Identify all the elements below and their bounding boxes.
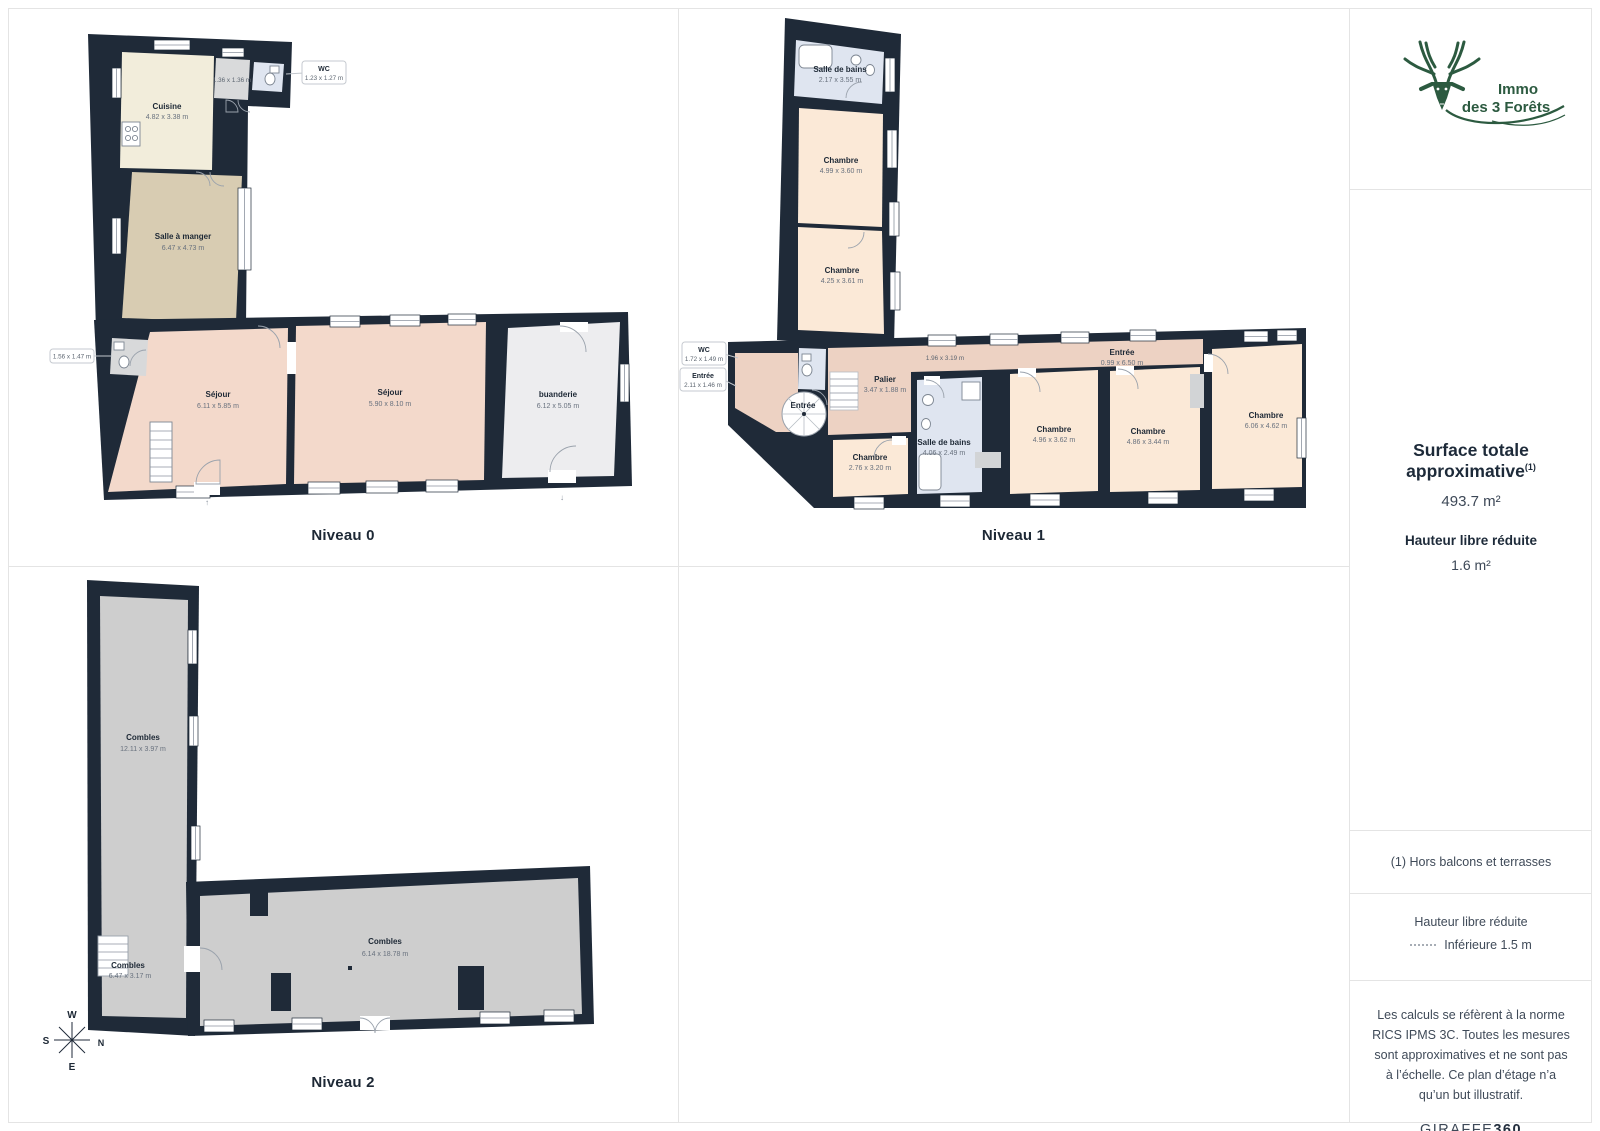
svg-text:↓: ↓ — [560, 493, 564, 502]
svg-text:2.11 x 1.46 m: 2.11 x 1.46 m — [684, 382, 722, 389]
footnote-section: (1) Hors balcons et terrasses — [1350, 830, 1592, 893]
marker-dot — [348, 966, 352, 970]
floor-title-niveau1: Niveau 1 — [678, 527, 1349, 544]
floorplan-niveau1: Salle de bains 2.17 x 3.55 m Chambre 4.9… — [678, 8, 1349, 566]
compass-n: N — [98, 1038, 105, 1048]
dims-chambre-c: 6.06 x 4.62 m — [1245, 423, 1288, 430]
dims-cuisine: 4.82 x 3.38 m — [146, 114, 189, 121]
dims-entree-corridor: 0.99 x 6.50 m — [1101, 360, 1144, 367]
room-buanderie — [502, 322, 620, 478]
spiral-stair — [782, 392, 826, 436]
closet-1 — [1190, 374, 1204, 408]
dims-salle-a-manger: 6.47 x 4.73 m — [162, 245, 205, 252]
closet-2 — [975, 452, 1001, 468]
dotted-line-icon — [1410, 944, 1436, 946]
logo-section: Immo des 3 Forêts — [1350, 30, 1592, 189]
label-sejour1: Séjour — [206, 390, 231, 399]
giraffe360-brand: GIRAFFE360 — [1350, 1122, 1592, 1131]
dims-corridor: 1.96 x 3.19 m — [926, 355, 964, 362]
label-buanderie: buanderie — [539, 390, 578, 399]
panel-niveau1: Salle de bains 2.17 x 3.55 m Chambre 4.9… — [678, 8, 1349, 566]
dims-combles-long: 12.11 x 3.97 m — [120, 746, 166, 753]
label-combles-big: Combles — [368, 937, 402, 946]
label-combles-small: Combles — [111, 961, 145, 970]
svg-text:1.72 x 1.49 m: 1.72 x 1.49 m — [685, 356, 723, 363]
callout-entree-n1: Entrée 2.11 x 1.46 m — [680, 368, 736, 391]
dims-chambre-a: 4.96 x 3.62 m — [1033, 437, 1076, 444]
dims-chambre-b: 4.86 x 3.44 m — [1127, 439, 1170, 446]
label-salle-a-manger: Salle à manger — [155, 232, 211, 241]
label-chambre-t2: Chambre — [825, 266, 860, 275]
panel-niveau0: ↑ ↓ Cuisine 4.82 x 3.38 m Salle à manger… — [8, 8, 678, 566]
panel-empty — [679, 567, 1349, 1123]
surface-value: 493.7 m² — [1350, 493, 1592, 510]
label-chambre-petite: Chambre — [853, 453, 888, 462]
reduced-height-title: Hauteur libre réduite — [1350, 533, 1592, 548]
dims-sejour2: 5.90 x 8.10 m — [369, 401, 412, 408]
label-chambre-b: Chambre — [1131, 427, 1166, 436]
label-chambre-a: Chambre — [1037, 425, 1072, 434]
dims-palier: 3.47 x 1.88 m — [864, 387, 907, 394]
dims-sdb-haut: 2.17 x 3.55 m — [819, 77, 862, 84]
svg-text:1.23 x 1.27 m: 1.23 x 1.27 m — [305, 75, 343, 82]
label-palier: Palier — [874, 375, 896, 384]
label-chambre-c: Chambre — [1249, 411, 1284, 420]
sidebar: Immo des 3 Forêts Surface totale approxi… — [1349, 8, 1592, 1123]
surface-section: Surface totale approximative(1) 493.7 m²… — [1350, 189, 1592, 830]
floorplan-niveau2: Combles 12.11 x 3.97 m Combles 6.47 x 3.… — [8, 566, 678, 1123]
label-sdb-haut: Salle de bains — [813, 65, 867, 74]
dims-combles-small: 6.47 x 3.17 m — [109, 973, 152, 980]
dims-buanderie: 6.12 x 5.05 m — [537, 403, 580, 410]
floor-title-niveau0: Niveau 0 — [8, 527, 678, 544]
svg-text:WC: WC — [318, 66, 330, 73]
label-sdb-bas: Salle de bains — [917, 438, 971, 447]
label-cuisine: Cuisine — [153, 102, 182, 111]
dims-sejour1: 6.11 x 5.85 m — [197, 403, 239, 410]
dims-chambre-t1: 4.99 x 3.60 m — [820, 168, 863, 175]
compass-s: S — [43, 1036, 50, 1047]
floorplan-niveau0: ↑ ↓ Cuisine 4.82 x 3.38 m Salle à manger… — [8, 8, 678, 566]
compass-w: W — [67, 1010, 77, 1021]
svg-text:WC: WC — [698, 347, 710, 354]
label-entree-corridor: Entrée — [1110, 348, 1135, 357]
svg-text:1.56 x 1.47 m: 1.56 x 1.47 m — [53, 354, 91, 361]
stair-cutout — [98, 936, 128, 976]
svg-text:Entrée: Entrée — [692, 373, 714, 380]
callout-wc-n0: WC 1.23 x 1.27 m — [286, 61, 346, 84]
label-entree-escalier: Entrée — [791, 401, 816, 410]
room-cuisine — [120, 52, 214, 170]
panel-niveau2: Combles 12.11 x 3.97 m Combles 6.47 x 3.… — [8, 566, 678, 1123]
palier-stair — [830, 372, 858, 410]
dims-vestibule: 1.36 x 1.36 m — [213, 77, 251, 84]
legend-item-label: Inférieure 1.5 m — [1444, 938, 1532, 952]
logo-line1: Immo — [1498, 81, 1538, 98]
footnote-text: (1) Hors balcons et terrasses — [1391, 855, 1551, 869]
label-combles-long: Combles — [126, 733, 160, 742]
floor-title-niveau2: Niveau 2 — [8, 1074, 678, 1091]
surface-footnote-marker: (1) — [1525, 462, 1536, 472]
deer-logo-icon: Immo des 3 Forêts — [1372, 30, 1572, 140]
label-chambre-t1: Chambre — [824, 156, 859, 165]
dims-chambre-t2: 4.25 x 3.61 m — [821, 278, 864, 285]
surface-title: Surface totale approximative(1) — [1350, 440, 1592, 482]
legend-section: Hauteur libre réduite Inférieure 1.5 m — [1350, 893, 1592, 980]
legend-title: Hauteur libre réduite — [1350, 915, 1592, 929]
reduced-height-value: 1.6 m² — [1350, 557, 1592, 573]
logo-line2: des 3 Forêts — [1462, 99, 1550, 116]
label-sejour2: Séjour — [378, 388, 403, 397]
disclaimer-section: Les calculs se réfèrent à la norme RICS … — [1350, 980, 1592, 1131]
dims-sdb-bas: 4.06 x 2.49 m — [923, 450, 966, 457]
door-gap-wings — [184, 946, 200, 972]
dims-combles-big: 6.14 x 18.78 m — [362, 951, 408, 958]
compass-e: E — [69, 1062, 76, 1073]
disclaimer-text: Les calculs se réfèrent à la norme RICS … — [1370, 1005, 1572, 1105]
svg-text:↑: ↑ — [205, 498, 209, 507]
dims-chambre-petite: 2.76 x 3.20 m — [849, 465, 892, 472]
